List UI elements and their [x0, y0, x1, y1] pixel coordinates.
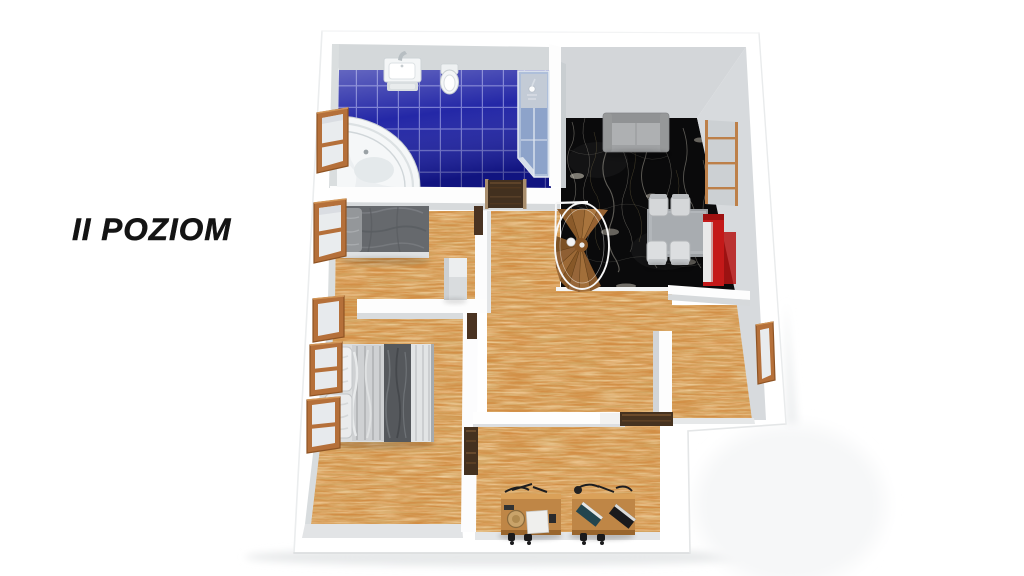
svg-text:II POZIOM: II POZIOM [72, 211, 232, 247]
